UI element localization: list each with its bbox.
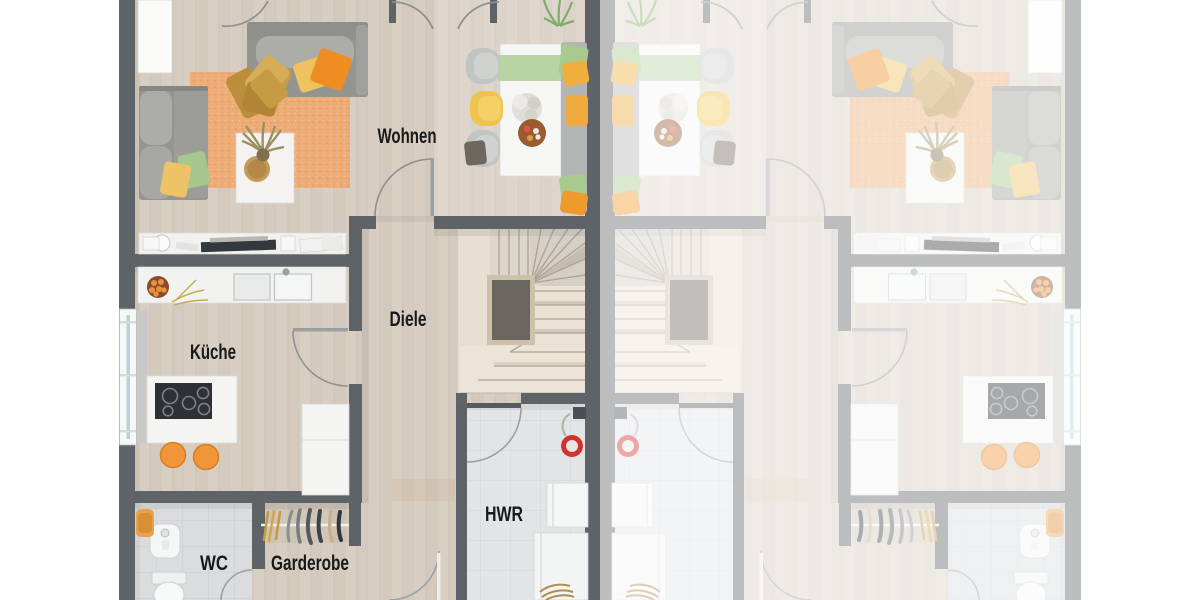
svg-text:Diele: Diele (390, 308, 427, 331)
svg-text:Wohnen: Wohnen (378, 125, 437, 148)
svg-text:HWR: HWR (485, 503, 523, 526)
svg-text:WC: WC (200, 552, 228, 575)
svg-text:Garderobe: Garderobe (271, 552, 349, 575)
svg-text:Küche: Küche (190, 341, 236, 364)
